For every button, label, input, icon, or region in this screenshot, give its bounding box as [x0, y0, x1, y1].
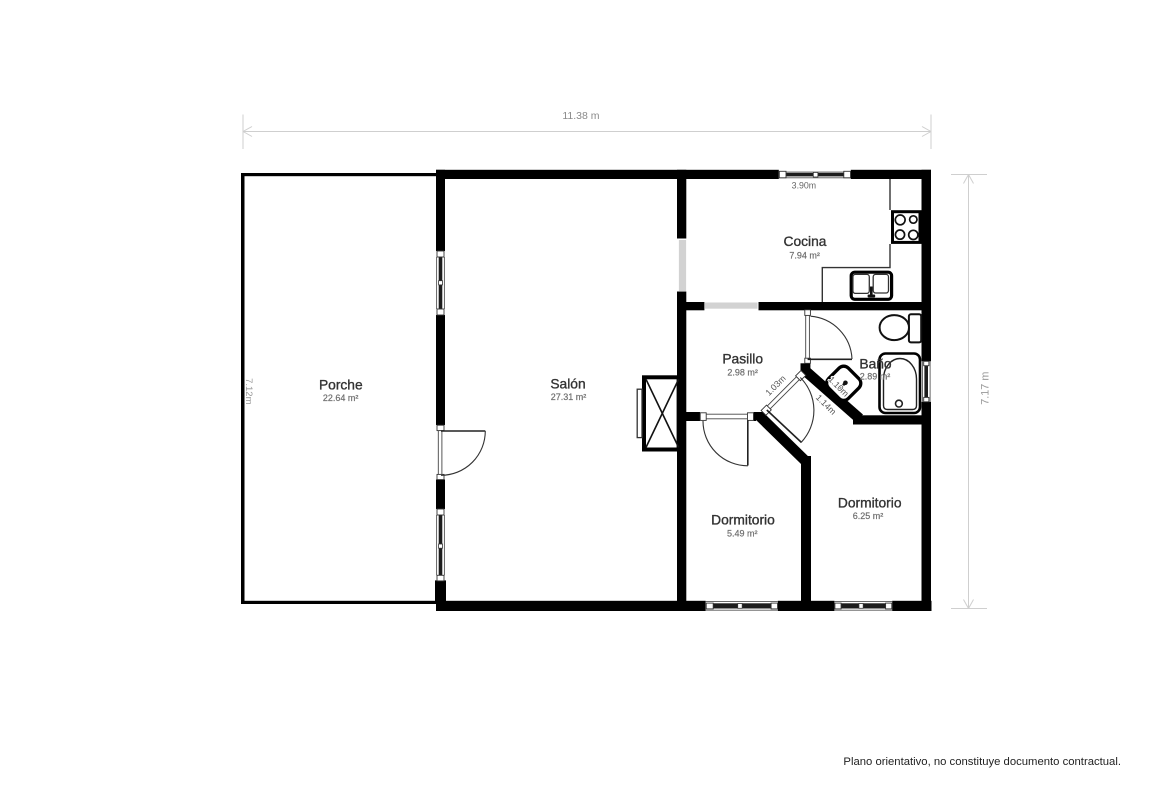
- svg-text:2.89 m²: 2.89 m²: [860, 372, 891, 382]
- svg-text:Pasillo: Pasillo: [722, 352, 763, 367]
- svg-text:Baño: Baño: [859, 357, 892, 372]
- svg-text:7.12m: 7.12m: [243, 378, 254, 404]
- svg-text:5.49 m²: 5.49 m²: [727, 529, 758, 539]
- svg-text:6.25 m²: 6.25 m²: [853, 511, 884, 521]
- svg-text:22.64 m²: 22.64 m²: [323, 393, 359, 403]
- svg-text:7.17 m: 7.17 m: [979, 372, 991, 405]
- svg-text:2.98 m²: 2.98 m²: [727, 367, 758, 377]
- svg-text:7.94 m²: 7.94 m²: [789, 250, 820, 260]
- svg-text:Dormitorio: Dormitorio: [838, 496, 902, 511]
- svg-text:3.90m: 3.90m: [792, 181, 816, 191]
- svg-text:Salón: Salón: [550, 376, 585, 391]
- svg-text:Porche: Porche: [319, 378, 363, 393]
- svg-text:Dormitorio: Dormitorio: [711, 513, 775, 528]
- svg-text:27.31 m²: 27.31 m²: [551, 392, 587, 402]
- svg-text:11.38 m: 11.38 m: [562, 110, 599, 122]
- svg-text:Plano orientativo, no constitu: Plano orientativo, no constituye documen…: [843, 756, 1121, 768]
- svg-text:Cocina: Cocina: [784, 234, 827, 249]
